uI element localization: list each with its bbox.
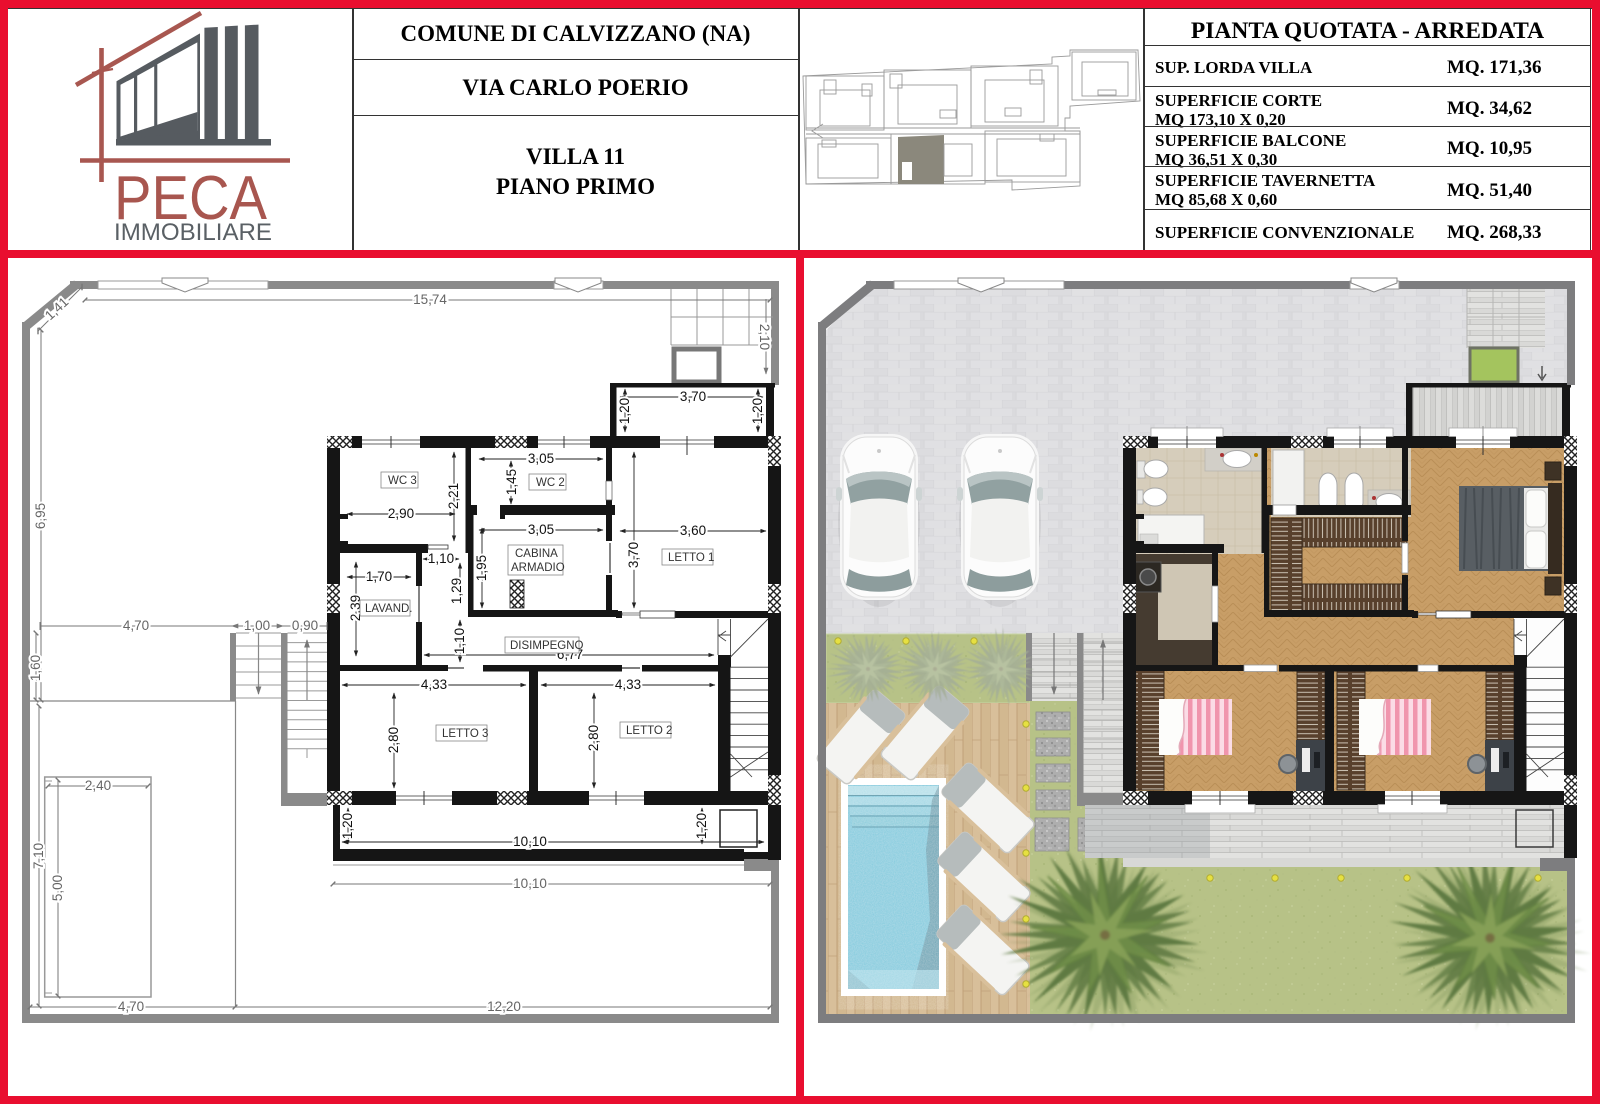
- svg-text:2,90: 2,90: [388, 506, 414, 521]
- svg-text:ARMADIO: ARMADIO: [511, 562, 565, 574]
- svg-text:1,20: 1,20: [750, 398, 765, 424]
- svg-text:3,70: 3,70: [626, 542, 641, 568]
- svg-text:7,10: 7,10: [31, 843, 46, 869]
- svg-text:1,00: 1,00: [244, 618, 270, 633]
- svg-text:3,05: 3,05: [528, 522, 554, 537]
- svg-text:1,45: 1,45: [504, 469, 519, 495]
- svg-text:4,70: 4,70: [118, 999, 144, 1014]
- svg-text:4,33: 4,33: [421, 677, 447, 692]
- svg-text:LETTO 1: LETTO 1: [668, 552, 714, 564]
- svg-text:2,80: 2,80: [586, 725, 601, 751]
- svg-text:1,41: 1,41: [42, 294, 71, 323]
- svg-text:2,80: 2,80: [386, 727, 401, 753]
- svg-text:1,10: 1,10: [452, 628, 467, 654]
- svg-text:15,74: 15,74: [413, 292, 447, 307]
- svg-text:12,20: 12,20: [487, 999, 521, 1014]
- svg-text:10,10: 10,10: [513, 876, 547, 891]
- svg-text:4,70: 4,70: [123, 618, 149, 633]
- svg-text:IMMOBILIARE: IMMOBILIARE: [114, 219, 272, 246]
- svg-text:2,10: 2,10: [757, 324, 772, 350]
- svg-text:1,29: 1,29: [449, 578, 464, 604]
- svg-text:0,90: 0,90: [292, 618, 318, 633]
- svg-text:CABINA: CABINA: [515, 548, 558, 560]
- svg-text:1,20: 1,20: [340, 813, 355, 839]
- svg-text:3,70: 3,70: [680, 389, 706, 404]
- svg-text:WC 2: WC 2: [536, 477, 565, 489]
- svg-text:DISIMPEGNO: DISIMPEGNO: [510, 640, 584, 652]
- svg-text:3,05: 3,05: [528, 451, 554, 466]
- svg-text:1,10: 1,10: [428, 551, 454, 566]
- svg-text:3,60: 3,60: [680, 523, 706, 538]
- svg-text:1,95: 1,95: [474, 555, 489, 581]
- svg-text:6,95: 6,95: [33, 503, 48, 529]
- svg-text:4,33: 4,33: [615, 677, 641, 692]
- svg-text:LETTO 3: LETTO 3: [442, 728, 488, 740]
- svg-text:LETTO 2: LETTO 2: [626, 725, 672, 737]
- svg-text:1,20: 1,20: [617, 398, 632, 424]
- svg-text:WC 3: WC 3: [388, 475, 417, 487]
- svg-text:2,40: 2,40: [85, 778, 111, 793]
- svg-text:1,70: 1,70: [366, 569, 392, 584]
- svg-text:2,21: 2,21: [446, 483, 461, 509]
- svg-text:10,10: 10,10: [513, 834, 547, 849]
- svg-text:1,60: 1,60: [28, 655, 43, 681]
- svg-text:5,00: 5,00: [50, 875, 65, 901]
- svg-text:1,20: 1,20: [694, 813, 709, 839]
- svg-text:LAVAND.: LAVAND.: [365, 603, 413, 615]
